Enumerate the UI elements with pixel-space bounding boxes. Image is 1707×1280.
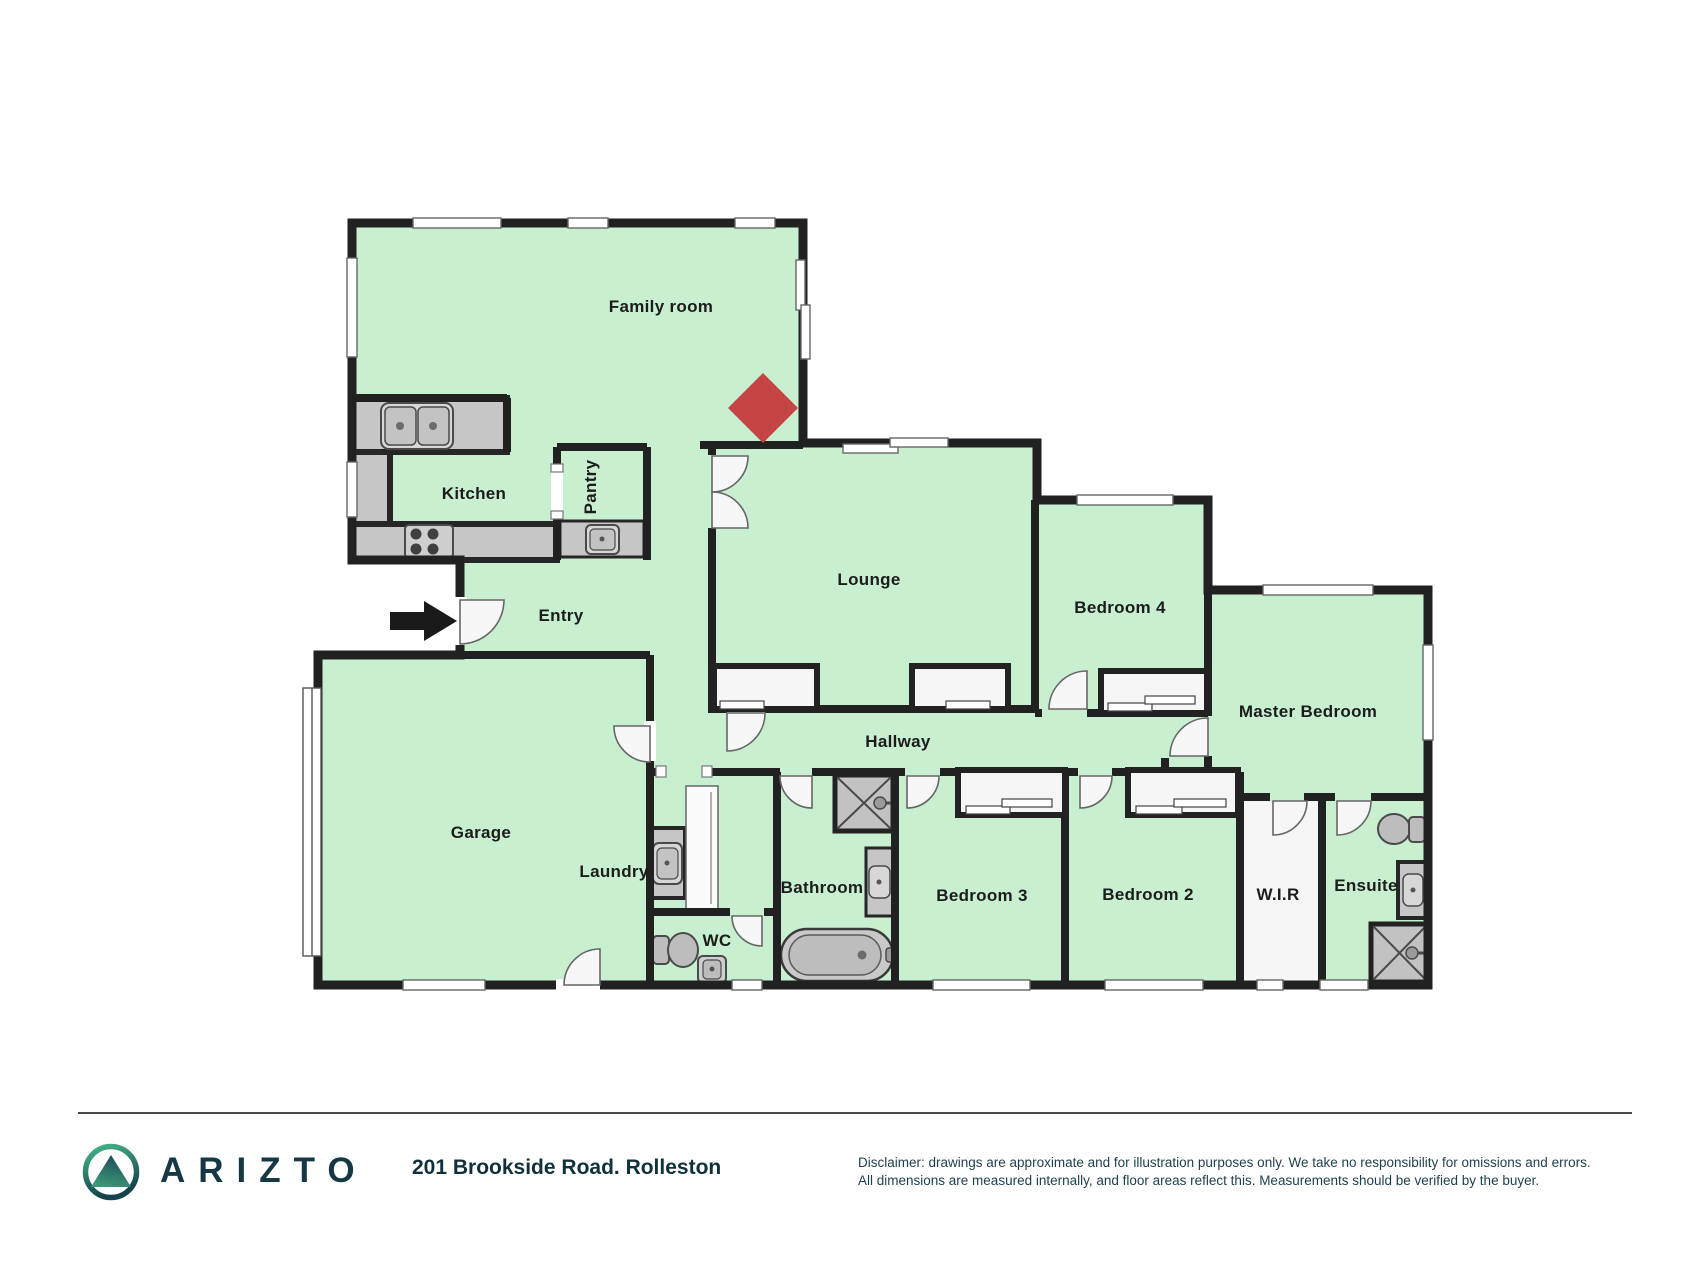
bathroom-vanity-icon [866,848,893,916]
bathtub-icon [781,929,896,981]
room-label-ensuite: Ensuite [1334,876,1398,895]
room-label-bedroom-4: Bedroom 4 [1074,598,1166,617]
room-label-kitchen: Kitchen [442,484,506,503]
room-label-laundry: Laundry [579,862,648,881]
footer-divider [78,1112,1632,1114]
laundry-sink-icon [653,843,682,884]
entry-direction-arrow-icon [390,601,457,641]
laundry-cabinet [686,786,718,910]
room-label-wc: WC [703,931,732,950]
kitchen-sink-icon [381,403,453,449]
garage-door [303,688,321,956]
ensuite-shower-icon [1371,924,1428,982]
arizto-logo-icon [82,1143,140,1201]
room-label-master-bedroom: Master Bedroom [1239,702,1377,721]
room-label-entry: Entry [539,606,584,625]
pantry-sink-icon [586,525,619,554]
footer-address: 201 Brookside Road. Rolleston [412,1156,721,1180]
wc-toilet-icon [653,933,698,967]
ensuite-toilet-icon [1378,814,1425,844]
room-label-pantry: Pantry [581,459,600,514]
room-label-wir: W.I.R [1256,885,1299,904]
brand-name: ARIZTO [160,1151,368,1191]
room-label-bedroom-2: Bedroom 2 [1102,885,1194,904]
bathroom-shower-icon [835,775,893,831]
footer-disclaimer-line2: All dimensions are measured internally, … [858,1172,1638,1190]
room-label-bedroom-3: Bedroom 3 [936,886,1028,905]
wc-basin-icon [698,956,726,983]
floorplan-page: Family room Kitchen Pantry Entry Lounge … [0,0,1707,1280]
footer-disclaimer-line1: Disclaimer: drawings are approximate and… [858,1154,1638,1172]
room-label-garage: Garage [451,823,511,842]
room-label-lounge: Lounge [837,570,900,589]
footer-disclaimer: Disclaimer: drawings are approximate and… [858,1154,1638,1190]
room-label-bathroom: Bathroom [781,878,864,897]
floorplan-drawing: Family room Kitchen Pantry Entry Lounge … [0,0,1707,1280]
room-label-hallway: Hallway [865,732,931,751]
stove-icon [405,525,453,558]
room-label-family-room: Family room [609,297,713,316]
